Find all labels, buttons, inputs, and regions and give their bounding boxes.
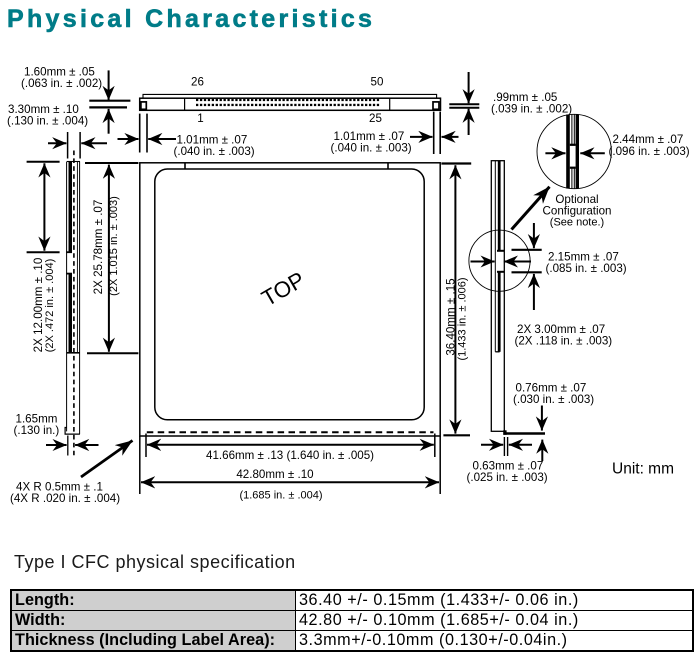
svg-text:(See note.): (See note.) bbox=[550, 217, 604, 229]
svg-text:(2X .472 in. ± .004): (2X .472 in. ± .004) bbox=[44, 259, 56, 352]
svg-text:(.096 in. ± .003): (.096 in. ± .003) bbox=[609, 145, 690, 158]
svg-text:25: 25 bbox=[369, 112, 382, 125]
svg-text:(2X 1.015 in. ± .003): (2X 1.015 in. ± .003) bbox=[108, 196, 120, 296]
svg-text:2X 25.78mm ± .07: 2X 25.78mm ± .07 bbox=[92, 200, 105, 295]
svg-text:26: 26 bbox=[191, 76, 204, 89]
svg-text:(.085 in. ± .003): (.085 in. ± .003) bbox=[546, 262, 627, 275]
svg-text:Unit: mm: Unit: mm bbox=[612, 461, 674, 478]
svg-text:TOP: TOP bbox=[257, 267, 309, 311]
svg-text:Configuration: Configuration bbox=[543, 204, 612, 217]
svg-text:(.063 in. ± .002): (.063 in. ± .002) bbox=[21, 77, 102, 90]
svg-text:41.66mm ± .13 (1.640 in. ± .00: 41.66mm ± .13 (1.640 in. ± .005) bbox=[206, 449, 374, 462]
svg-text:(4X R .020 in. ± .004): (4X R .020 in. ± .004) bbox=[10, 492, 120, 505]
svg-text:(.040 in. ± .003): (.040 in. ± .003) bbox=[331, 142, 412, 155]
svg-text:(.130 in.): (.130 in.) bbox=[14, 424, 60, 437]
svg-text:(.130 in. ± .004): (.130 in. ± .004) bbox=[7, 115, 88, 128]
svg-text:(.039 in. ± .002): (.039 in. ± .002) bbox=[491, 103, 572, 116]
svg-text:(1.685 in. ± .004): (1.685 in. ± .004) bbox=[239, 489, 322, 501]
svg-text:(.025 in. ± .003): (.025 in. ± .003) bbox=[467, 471, 548, 484]
svg-text:(1.433 in. ± .006): (1.433 in. ± .006) bbox=[456, 277, 468, 360]
svg-text:50: 50 bbox=[371, 76, 384, 89]
svg-text:(2X .118 in. ± .003): (2X .118 in. ± .003) bbox=[515, 335, 613, 348]
svg-text:(.030 in. ± .003): (.030 in. ± .003) bbox=[513, 393, 594, 406]
svg-text:42.80mm ± .10: 42.80mm ± .10 bbox=[236, 468, 313, 481]
svg-text:1: 1 bbox=[197, 112, 203, 125]
svg-text:(.040 in. ± .003): (.040 in. ± .003) bbox=[174, 145, 255, 158]
